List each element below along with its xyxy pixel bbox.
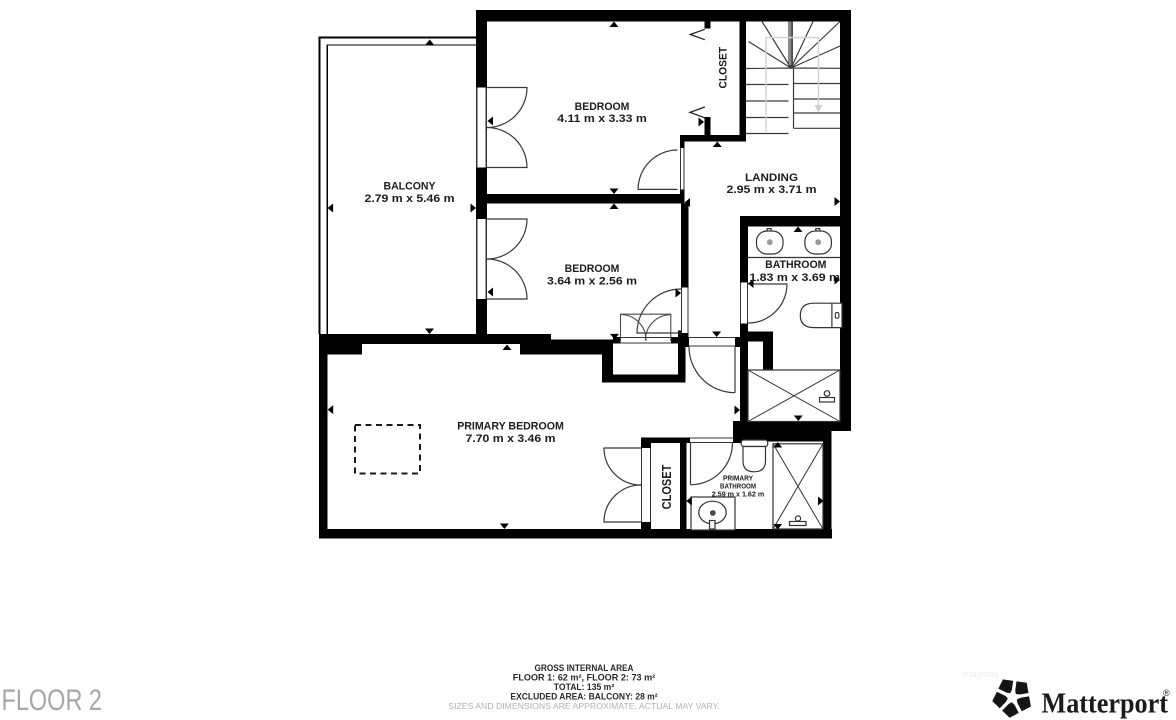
- svg-text:®: ®: [1163, 688, 1170, 698]
- svg-text:2.79 m x 5.46 m: 2.79 m x 5.46 m: [365, 193, 455, 205]
- svg-text:PRIMARY BEDROOM: PRIMARY BEDROOM: [457, 421, 564, 433]
- svg-text:BATHROOM: BATHROOM: [765, 259, 826, 271]
- svg-text:LANDING: LANDING: [745, 172, 798, 184]
- svg-text:3.64 m x 2.56 m: 3.64 m x 2.56 m: [547, 275, 637, 287]
- svg-text:SIZES AND DIMENSIONS ARE APPRO: SIZES AND DIMENSIONS ARE APPROXIMATE, AC…: [448, 701, 719, 711]
- svg-text:1.83 m x 3.69 m: 1.83 m x 3.69 m: [749, 272, 840, 284]
- svg-text:imagetag: imagetag: [962, 669, 999, 679]
- svg-text:7.70 m x 3.46 m: 7.70 m x 3.46 m: [466, 433, 556, 445]
- svg-text:FLOOR 1: 62 m², FLOOR 2: 73 m²: FLOOR 1: 62 m², FLOOR 2: 73 m²: [513, 673, 655, 683]
- svg-text:BEDROOM: BEDROOM: [565, 263, 620, 275]
- svg-text:TOTAL: 135 m²: TOTAL: 135 m²: [554, 682, 614, 692]
- svg-text:Matterport: Matterport: [1042, 687, 1169, 719]
- svg-text:2.59 m x 1.62 m: 2.59 m x 1.62 m: [712, 489, 765, 498]
- svg-text:BEDROOM: BEDROOM: [575, 101, 630, 113]
- svg-text:FLOOR 2: FLOOR 2: [2, 684, 103, 717]
- svg-text:BALCONY: BALCONY: [384, 181, 437, 193]
- svg-text:CLOSET: CLOSET: [718, 47, 730, 89]
- svg-text:4.11 m x 3.33 m: 4.11 m x 3.33 m: [557, 113, 647, 125]
- svg-text:GROSS INTERNAL AREA: GROSS INTERNAL AREA: [535, 663, 634, 673]
- svg-text:2.95 m x 3.71 m: 2.95 m x 3.71 m: [727, 184, 817, 196]
- svg-text:CLOSET: CLOSET: [659, 464, 674, 509]
